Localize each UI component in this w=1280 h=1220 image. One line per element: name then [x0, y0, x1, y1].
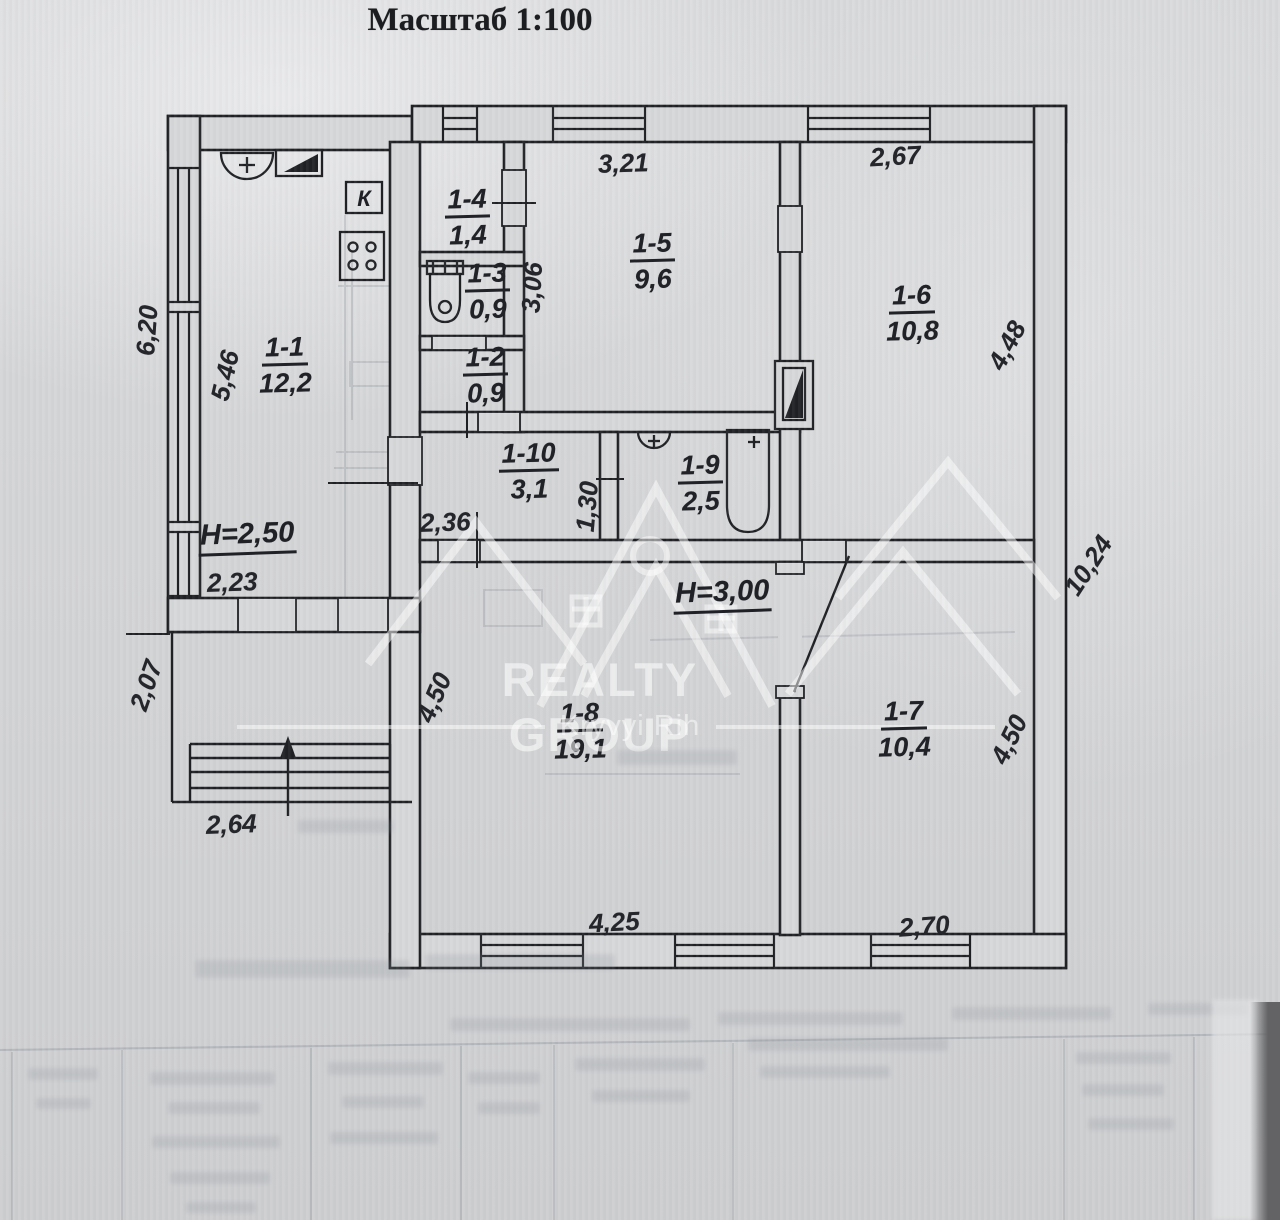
bleed-through-smudge [186, 1202, 256, 1213]
dim-porch-front: 2,64 [205, 808, 257, 841]
bleed-through-smudge [330, 1132, 438, 1144]
watermark-brand: REALTY GROUP [418, 652, 782, 762]
dim-room18-front: 4,25 [588, 906, 640, 940]
room-label-1-1: 1-112,2 [239, 331, 331, 400]
watermark-city: Kryvyi Rih [520, 710, 740, 743]
room-label-1-7: 1-710,4 [855, 695, 953, 764]
bleed-through-smudge [28, 1068, 98, 1080]
page-edge-shadow [1250, 1002, 1280, 1220]
bleed-through-smudge [425, 954, 615, 970]
vent-shaft [775, 361, 813, 429]
room-label-1-10: 1-103,1 [482, 437, 576, 506]
scale-title: Масштаб 1:100 [340, 2, 620, 39]
bleed-through-smudge [342, 1096, 424, 1108]
bleed-through-smudge [575, 1058, 705, 1071]
height-label-main: Н=3,00 [672, 574, 771, 610]
dim-top-room15: 3,21 [597, 147, 649, 180]
room-label-1-9: 1-92,5 [657, 449, 744, 518]
dim-left-outer: 6,20 [130, 304, 164, 357]
room-label-1-4: 1-41,4 [424, 183, 511, 252]
dim-top-room16: 2,67 [869, 140, 921, 174]
bleed-through-smudge [718, 1012, 903, 1025]
room-label-1-2: 1-20,9 [442, 341, 529, 410]
kitchen-sink [221, 153, 273, 179]
bleed-through-smudge [150, 1072, 275, 1085]
dim-hall-width: 2,36 [419, 506, 471, 539]
height-label-wing: Н=2,50 [197, 516, 296, 552]
direction-arrow-head [280, 736, 296, 758]
room-label-1-6: 1-610,8 [865, 279, 959, 348]
bleed-through-smudge [478, 1102, 540, 1114]
bleed-through-smudge [168, 1102, 260, 1114]
bleed-through-smudge [592, 1090, 690, 1102]
bleed-through-smudge [152, 1136, 280, 1148]
bleed-through-smudge [170, 1172, 270, 1184]
bleed-through-smudge [760, 1066, 890, 1078]
kitchen-marker: К [346, 184, 382, 214]
bleed-through-smudge [36, 1098, 91, 1109]
floorplan-scan: Масштаб 1:100 1-112,2 1-20,9 1-30,9 1-41… [0, 0, 1280, 1220]
dim-hall-height: 1,30 [570, 480, 605, 533]
dim-room11-bottom: 2,23 [206, 566, 258, 599]
bleed-through-smudge [617, 750, 737, 765]
stove [340, 232, 384, 280]
washbasin [638, 432, 670, 448]
floorplan-drawing [0, 0, 1280, 1220]
dim-corridor-vert: 3,06 [516, 261, 550, 313]
bleed-through-smudge [1076, 1052, 1171, 1064]
bleed-through-smudge [952, 1007, 1112, 1020]
kitchen-counter [276, 150, 322, 176]
dim-room17-front: 2,70 [898, 909, 951, 943]
bleed-through-smudge [328, 1062, 443, 1075]
bleed-through-smudge [298, 820, 393, 833]
bleed-through-smudge [1082, 1084, 1164, 1096]
bleed-through-smudge [195, 960, 410, 978]
bleed-through-smudge [748, 1038, 948, 1051]
bleed-through-smudge [468, 1072, 540, 1084]
room-label-1-5: 1-59,6 [609, 227, 696, 296]
bleed-through-smudge [450, 1018, 690, 1031]
bleed-through-smudge [1088, 1118, 1174, 1130]
